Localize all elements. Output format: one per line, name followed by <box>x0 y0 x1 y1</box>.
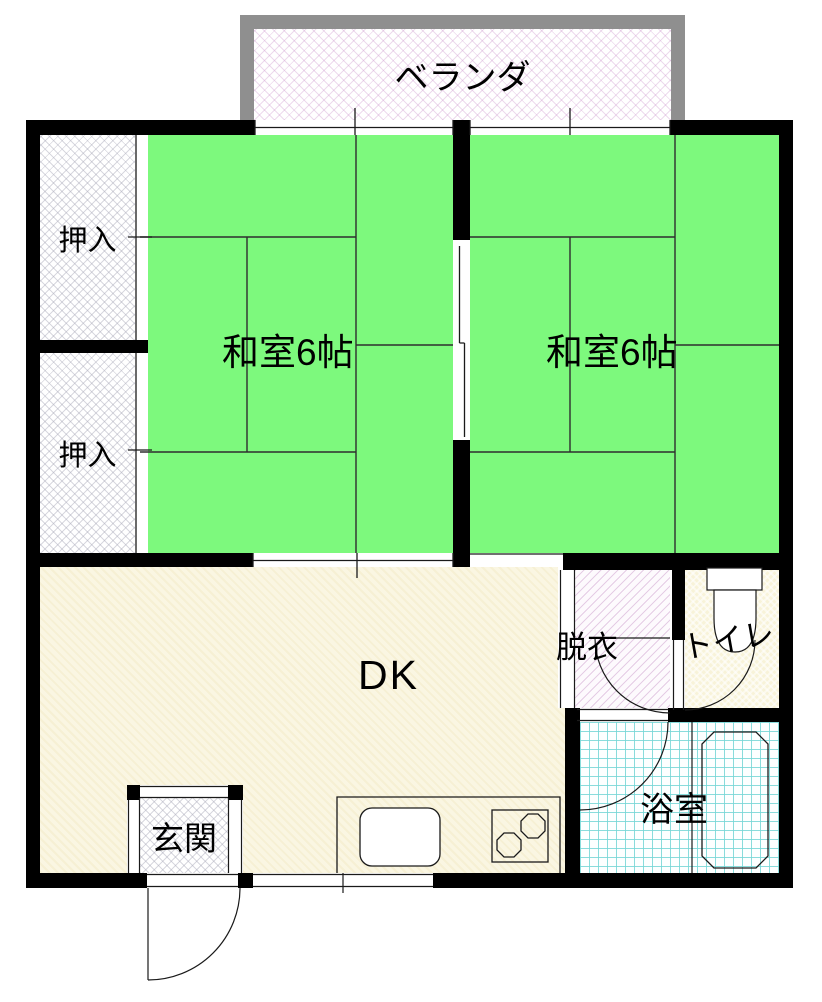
genkan-post-right <box>228 785 243 800</box>
wall-right <box>779 120 793 888</box>
wall-left <box>26 120 40 888</box>
bathroom-label: 浴室 <box>640 782 708 831</box>
genkan-step-strip <box>140 785 228 798</box>
wall-dk-boundary-left <box>26 553 253 567</box>
wall-top-right <box>670 120 793 135</box>
dressing-label: 脱衣 <box>556 622 618 667</box>
washitsu-left-label: 和室6帖 <box>222 322 354 376</box>
window-kitchen-bottom <box>253 873 433 893</box>
room-veranda: ベランダ <box>254 29 671 120</box>
veranda-frame-top <box>240 15 685 29</box>
wall-bottom-right <box>433 873 793 888</box>
wall-closet-divider <box>26 340 148 353</box>
wall-top-left <box>26 120 255 135</box>
fusuma-between-washitsu <box>460 246 465 437</box>
wall-dk-boundary-center <box>453 553 470 567</box>
room-genkan: 玄関 <box>140 798 228 873</box>
veranda-label: ベランダ <box>395 50 531 99</box>
floor-plan: ベランダ 押入 押入 玄関 <box>0 0 822 1002</box>
closet-lower-label: 押入 <box>58 432 116 474</box>
genkan-post-left <box>127 785 140 800</box>
veranda-frame-left <box>240 15 254 120</box>
wall-bath-top-right <box>668 708 793 722</box>
wall-top-center <box>453 120 470 135</box>
wall-partition-upper <box>453 135 470 240</box>
washitsu-right-label: 和室6帖 <box>546 322 678 376</box>
room-dining-kitchen <box>40 567 565 873</box>
dk-label: DK <box>358 652 419 699</box>
veranda-frame-right <box>671 15 685 120</box>
wall-bath-top-left <box>565 708 577 722</box>
room-closet-upper: 押入 <box>40 135 135 340</box>
closet-upper-label: 押入 <box>58 217 116 259</box>
wall-dk-bath <box>565 708 580 888</box>
door-arc-genkan <box>147 875 240 981</box>
wall-partition-lower <box>453 440 470 553</box>
room-closet-lower: 押入 <box>40 353 135 553</box>
wall-bottom-post <box>238 873 253 888</box>
wall-bottom-left <box>26 873 147 888</box>
genkan-label: 玄関 <box>151 812 217 860</box>
